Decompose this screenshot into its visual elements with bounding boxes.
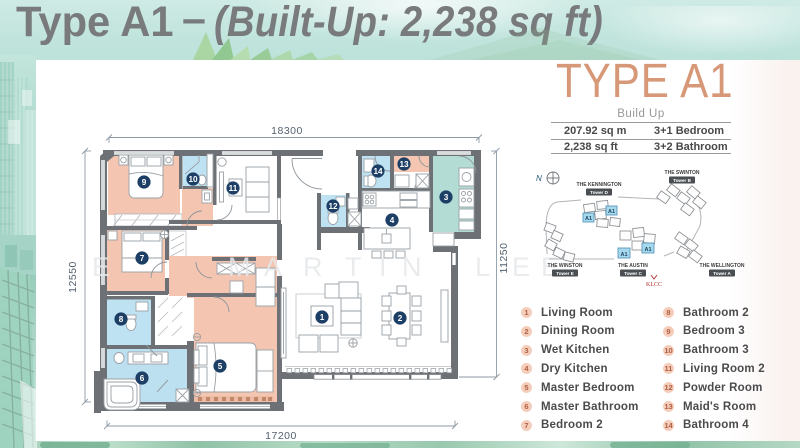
svg-text:1: 1 [320,313,325,322]
svg-text:R: R [303,252,323,282]
svg-text:E: E [92,252,110,282]
svg-text:N: N [402,252,422,282]
svg-text:THE SWINTON: THE SWINTON [665,170,700,176]
svg-text:14: 14 [373,167,383,176]
svg-text:A1: A1 [644,247,651,253]
svg-text:A1: A1 [608,209,615,215]
svg-text:Tower E: Tower E [556,271,574,276]
svg-text:A1: A1 [620,252,627,258]
svg-text:THE KENNINGTON: THE KENNINGTON [577,182,622,188]
svg-text:8: 8 [119,315,124,324]
svg-text:17200: 17200 [265,430,297,442]
svg-text:4: 4 [390,216,395,225]
svg-text:9: 9 [142,178,147,187]
svg-text:I: I [379,252,387,282]
svg-text:Tower A: Tower A [713,271,731,276]
svg-text:11250: 11250 [498,243,510,274]
svg-text:A1: A1 [585,216,592,222]
svg-text:11: 11 [229,184,238,193]
svg-text:13: 13 [399,160,409,169]
svg-text:3: 3 [444,193,449,202]
svg-text:A: A [264,252,282,282]
svg-text:Tower D: Tower D [590,190,608,195]
svg-text:Tower B: Tower B [673,178,691,183]
svg-text:L: L [475,252,490,282]
svg-text:12: 12 [328,202,338,211]
svg-text:12550: 12550 [67,261,79,293]
svg-text:T: T [345,252,362,282]
svg-text:THE AUSTIN: THE AUSTIN [618,263,648,269]
svg-text:THE WELLINGTON: THE WELLINGTON [700,263,745,269]
svg-text:THE WINSTON: THE WINSTON [548,263,583,269]
svg-text:M: M [228,252,251,282]
svg-text:5: 5 [218,362,223,371]
svg-text:7: 7 [140,254,145,263]
svg-text:Tower C: Tower C [624,271,642,276]
svg-text:E: E [512,252,530,282]
svg-text:KLCC: KLCC [646,282,662,288]
svg-text:N: N [536,174,542,183]
svg-text:10: 10 [188,175,198,184]
svg-text:18300: 18300 [271,125,303,137]
svg-text:6: 6 [140,374,145,383]
svg-text:2: 2 [398,314,403,323]
